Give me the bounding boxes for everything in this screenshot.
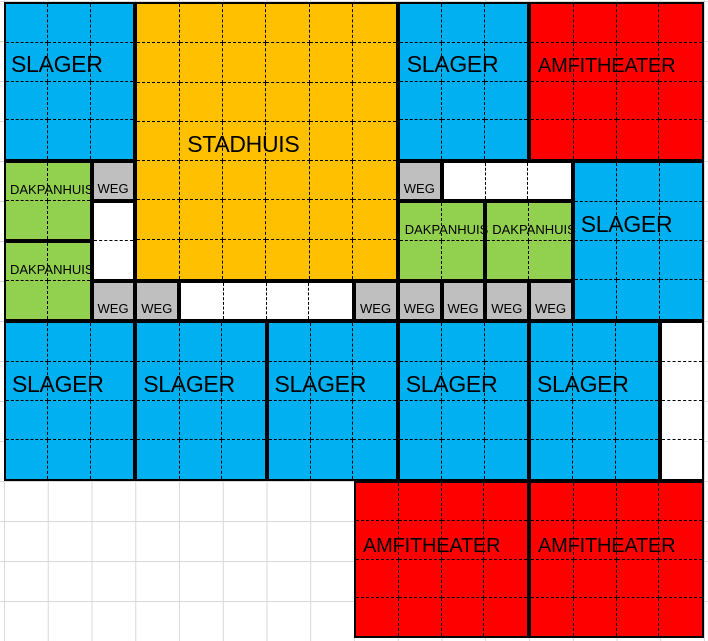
- grid-cell: [180, 401, 222, 440]
- grid-cell: [531, 4, 574, 43]
- zone-slager-top-left[interactable]: SLAGER: [4, 2, 135, 161]
- grid-cell: [6, 201, 48, 239]
- grid-cell: [528, 163, 570, 199]
- grid-cell: [442, 362, 484, 401]
- grid-cell: [137, 83, 180, 122]
- grid-cell: [442, 483, 485, 521]
- grid-cell: [269, 440, 311, 479]
- grid-cell: [574, 4, 617, 43]
- grid-cell: [660, 241, 702, 280]
- grid-cell: [662, 323, 702, 362]
- grid-cell: [442, 521, 485, 559]
- grid-cell: [484, 521, 527, 559]
- grid-cell: [442, 241, 484, 279]
- zone-dakpanhuis-left-2[interactable]: DAKPANHUIS: [4, 241, 92, 321]
- grid-cell: [353, 4, 396, 43]
- grid-cell: [222, 362, 264, 401]
- grid-cell: [659, 560, 702, 598]
- grid-cell: [48, 163, 90, 201]
- zone-slager-bottom-3[interactable]: SLAGER: [267, 321, 398, 481]
- grid-cell: [311, 440, 353, 479]
- grid-cell: [223, 200, 266, 239]
- grid-cell: [662, 440, 702, 479]
- grid-cell: [310, 161, 353, 200]
- grid-cell: [485, 362, 527, 401]
- grid-cell: [573, 362, 615, 401]
- grid-cell: [269, 323, 311, 362]
- grid-cell: [353, 401, 395, 440]
- grid-cell: [659, 4, 702, 43]
- grid-cell: [137, 43, 180, 82]
- grid-cell: [660, 163, 702, 202]
- grid-cell: [311, 362, 353, 401]
- grid-cell: [48, 440, 90, 479]
- grid-cell: [531, 82, 574, 121]
- zone-dakpanhuis-mid-1[interactable]: DAKPANHUIS: [398, 201, 486, 281]
- zone-dakpanhuis-mid-2[interactable]: DAKPANHUIS: [485, 201, 573, 281]
- grid-cell: [574, 560, 617, 598]
- grid-cell: [400, 4, 442, 43]
- grid-cell: [575, 202, 617, 241]
- grid-cell: [442, 401, 484, 440]
- grid-cell: [310, 83, 353, 122]
- grid-cell: [574, 483, 617, 521]
- grid-cell: [356, 283, 396, 319]
- grid-cell: [223, 43, 266, 82]
- grid-cell: [617, 4, 660, 43]
- grid-cell: [617, 120, 660, 159]
- zone-slager-bottom-2[interactable]: SLAGER: [135, 321, 266, 481]
- grid-cell: [356, 598, 399, 636]
- grid-cell: [400, 120, 442, 159]
- grid-cell: [399, 483, 442, 521]
- zone-slager-bottom-1[interactable]: SLAGER: [4, 321, 135, 481]
- grid-cell: [574, 120, 617, 159]
- grid-cell: [400, 241, 442, 279]
- grid-cell: [48, 201, 90, 239]
- grid-cell: [531, 283, 571, 319]
- grid-cell: [616, 323, 658, 362]
- grid-cell: [48, 362, 90, 401]
- grid-cell: [617, 598, 660, 636]
- grid-cell: [485, 43, 527, 82]
- zone-empty-row-4[interactable]: [442, 161, 573, 201]
- city-map-board: SLAGER STADHUIS SLAGER AMFITHEATER DAKPA…: [0, 0, 708, 641]
- grid-cell: [659, 120, 702, 159]
- grid-cell: [485, 401, 527, 440]
- grid-cell: [91, 120, 133, 159]
- grid-cell: [485, 323, 527, 362]
- grid-cell: [311, 401, 353, 440]
- grid-cell: [617, 163, 659, 202]
- zone-slager-top-middle[interactable]: SLAGER: [398, 2, 529, 161]
- grid-cell: [91, 362, 133, 401]
- grid-cell: [180, 362, 222, 401]
- grid-cell: [223, 240, 266, 279]
- grid-cell: [400, 323, 442, 362]
- grid-cell: [531, 440, 573, 479]
- zone-weg-2[interactable]: WEG: [398, 161, 442, 201]
- grid-cell: [399, 598, 442, 636]
- grid-cell: [223, 122, 266, 161]
- grid-cell: [356, 521, 399, 559]
- grid-cell: [310, 4, 353, 43]
- grid-cell: [662, 401, 702, 440]
- grid-cell: [310, 240, 353, 279]
- grid-cell: [310, 122, 353, 161]
- grid-cell: [442, 560, 485, 598]
- grid-cell: [137, 401, 179, 440]
- grid-cell: [222, 323, 264, 362]
- grid-cell: [574, 598, 617, 636]
- grid-cell: [6, 440, 48, 479]
- grid-cell: [6, 362, 48, 401]
- grid-cell: [6, 82, 48, 121]
- grid-cell: [484, 483, 527, 521]
- grid-cell: [442, 203, 484, 241]
- grid-cell: [353, 240, 396, 279]
- grid-cell: [487, 241, 529, 279]
- grid-cell: [659, 598, 702, 636]
- grid-cell: [94, 163, 134, 199]
- grid-cell: [617, 43, 660, 82]
- zone-weg-3[interactable]: WEG: [92, 281, 136, 321]
- grid-cell: [6, 323, 48, 362]
- grid-cell: [48, 82, 90, 121]
- grid-cell: [574, 43, 617, 82]
- grid-cell: [6, 4, 48, 43]
- grid-cell: [531, 120, 574, 159]
- grid-cell: [616, 440, 658, 479]
- grid-cell: [400, 401, 442, 440]
- grid-cell: [442, 43, 484, 82]
- zone-weg-8[interactable]: WEG: [485, 281, 529, 321]
- grid-cell: [485, 120, 527, 159]
- grid-cell: [48, 401, 90, 440]
- grid-cell: [137, 283, 177, 319]
- zone-weg-6[interactable]: WEG: [398, 281, 442, 321]
- grid-cell: [531, 323, 573, 362]
- grid-cell: [484, 560, 527, 598]
- grid-cell: [529, 241, 571, 279]
- grid-cell: [659, 82, 702, 121]
- grid-cell: [617, 82, 660, 121]
- grid-cell: [266, 83, 309, 122]
- grid-cell: [531, 401, 573, 440]
- grid-cell: [442, 598, 485, 636]
- zone-empty-row-7[interactable]: [179, 281, 354, 321]
- grid-cell: [617, 280, 659, 319]
- grid-cell: [442, 440, 484, 479]
- grid-cell: [180, 323, 222, 362]
- grid-cell: [48, 281, 90, 319]
- zone-slager-bottom-4[interactable]: SLAGER: [398, 321, 529, 481]
- grid-cell: [223, 83, 266, 122]
- grid-cell: [6, 401, 48, 440]
- grid-cell: [6, 243, 48, 281]
- grid-cell: [222, 401, 264, 440]
- grid-cell: [6, 281, 48, 319]
- grid-cell: [180, 240, 223, 279]
- grid-cell: [617, 483, 660, 521]
- grid-cell: [531, 598, 574, 636]
- grid-cell: [356, 483, 399, 521]
- grid-cell: [353, 200, 396, 239]
- grid-cell: [222, 440, 264, 479]
- grid-cell: [575, 163, 617, 202]
- grid-cell: [48, 323, 90, 362]
- zone-amfitheater-top-right[interactable]: AMFITHEATER: [529, 2, 704, 161]
- grid-cell: [616, 362, 658, 401]
- grid-cell: [269, 401, 311, 440]
- grid-cell: [137, 240, 180, 279]
- grid-cell: [137, 362, 179, 401]
- grid-cell: [356, 560, 399, 598]
- grid-cell: [616, 401, 658, 440]
- grid-cell: [269, 362, 311, 401]
- grid-cell: [91, 440, 133, 479]
- grid-cell: [659, 521, 702, 559]
- grid-cell: [617, 241, 659, 280]
- grid-cell: [223, 4, 266, 43]
- grid-cell: [531, 521, 574, 559]
- zone-slager-right[interactable]: SLAGER: [573, 161, 704, 321]
- grid-cell: [353, 122, 396, 161]
- grid-cell: [487, 203, 529, 241]
- grid-cell: [487, 283, 527, 319]
- grid-cell: [48, 4, 90, 43]
- grid-cell: [573, 323, 615, 362]
- grid-cell: [400, 43, 442, 82]
- grid-cell: [137, 200, 180, 239]
- grid-cell: [400, 362, 442, 401]
- grid-cell: [224, 283, 267, 319]
- grid-cell: [531, 483, 574, 521]
- zone-weg-4[interactable]: WEG: [135, 281, 179, 321]
- grid-cell: [137, 161, 180, 200]
- zone-slager-bottom-5[interactable]: SLAGER: [529, 321, 660, 481]
- grid-cell: [485, 82, 527, 121]
- grid-cell: [486, 163, 528, 199]
- grid-cell: [573, 401, 615, 440]
- grid-cell: [617, 202, 659, 241]
- grid-cell: [353, 83, 396, 122]
- grid-cell: [91, 401, 133, 440]
- grid-cell: [400, 163, 440, 199]
- grid-cell: [267, 283, 310, 319]
- zone-weg-7[interactable]: WEG: [442, 281, 486, 321]
- grid-cell: [400, 440, 442, 479]
- grid-cell: [266, 161, 309, 200]
- grid-cell: [531, 43, 574, 82]
- grid-cell: [444, 163, 486, 199]
- grid-cell: [442, 120, 484, 159]
- grid-cell: [223, 161, 266, 200]
- grid-cell: [48, 243, 90, 281]
- grid-cell: [180, 161, 223, 200]
- grid-cell: [353, 362, 395, 401]
- grid-cell: [617, 560, 660, 598]
- grid-cell: [310, 43, 353, 82]
- grid-cell: [575, 280, 617, 319]
- grid-cell: [353, 323, 395, 362]
- grid-cell: [180, 122, 223, 161]
- zone-dakpanhuis-left-1[interactable]: DAKPANHUIS: [4, 161, 92, 241]
- grid-cell: [266, 240, 309, 279]
- grid-cell: [529, 203, 571, 241]
- grid-cell: [180, 200, 223, 239]
- grid-cell: [94, 283, 134, 319]
- grid-cell: [485, 4, 527, 43]
- grid-cell: [442, 4, 484, 43]
- grid-cell: [353, 161, 396, 200]
- grid-cell: [48, 43, 90, 82]
- grid-cell: [266, 122, 309, 161]
- grid-cell: [180, 4, 223, 43]
- grid-cell: [662, 362, 702, 401]
- grid-cell: [574, 82, 617, 121]
- grid-cell: [94, 241, 134, 279]
- grid-cell: [6, 43, 48, 82]
- grid-cell: [181, 283, 224, 319]
- grid-cell: [531, 362, 573, 401]
- grid-cell: [531, 560, 574, 598]
- grid-cell: [309, 283, 352, 319]
- grid-cell: [353, 43, 396, 82]
- grid-cell: [617, 521, 660, 559]
- grid-cell: [400, 283, 440, 319]
- grid-cell: [266, 200, 309, 239]
- grid-cell: [91, 43, 133, 82]
- grid-cell: [353, 440, 395, 479]
- grid-cell: [91, 82, 133, 121]
- grid-cell: [137, 323, 179, 362]
- grid-cell: [399, 560, 442, 598]
- grid-cell: [574, 521, 617, 559]
- grid-cell: [400, 82, 442, 121]
- grid-cell: [573, 440, 615, 479]
- grid-cell: [266, 43, 309, 82]
- zone-empty-col-15[interactable]: [660, 321, 704, 481]
- grid-cell: [91, 4, 133, 43]
- zone-stadhuis[interactable]: STADHUIS: [135, 2, 398, 281]
- grid-cell: [180, 83, 223, 122]
- zone-weg-9[interactable]: WEG: [529, 281, 573, 321]
- zone-empty-col-2[interactable]: [92, 201, 136, 281]
- grid-cell: [48, 120, 90, 159]
- grid-cell: [400, 203, 442, 241]
- grid-cell: [91, 323, 133, 362]
- grid-cell: [659, 483, 702, 521]
- grid-cell: [442, 323, 484, 362]
- zone-weg-5[interactable]: WEG: [354, 281, 398, 321]
- grid-cell: [444, 283, 484, 319]
- grid-cell: [660, 202, 702, 241]
- grid-cell: [310, 200, 353, 239]
- zone-amfitheater-bottom-2[interactable]: AMFITHEATER: [529, 481, 704, 638]
- grid-cell: [399, 521, 442, 559]
- grid-cell: [575, 241, 617, 280]
- grid-cell: [266, 4, 309, 43]
- grid-cell: [137, 440, 179, 479]
- zone-amfitheater-bottom-1[interactable]: AMFITHEATER: [354, 481, 529, 638]
- zone-weg-1[interactable]: WEG: [92, 161, 136, 201]
- grid-cell: [6, 120, 48, 159]
- grid-cell: [484, 598, 527, 636]
- grid-cell: [6, 163, 48, 201]
- grid-cell: [485, 440, 527, 479]
- grid-cell: [311, 323, 353, 362]
- grid-cell: [659, 43, 702, 82]
- grid-cell: [94, 203, 134, 241]
- grid-cell: [660, 280, 702, 319]
- grid-cell: [180, 43, 223, 82]
- grid-cell: [442, 82, 484, 121]
- grid-cell: [180, 440, 222, 479]
- grid-cell: [137, 122, 180, 161]
- grid-cell: [137, 4, 180, 43]
